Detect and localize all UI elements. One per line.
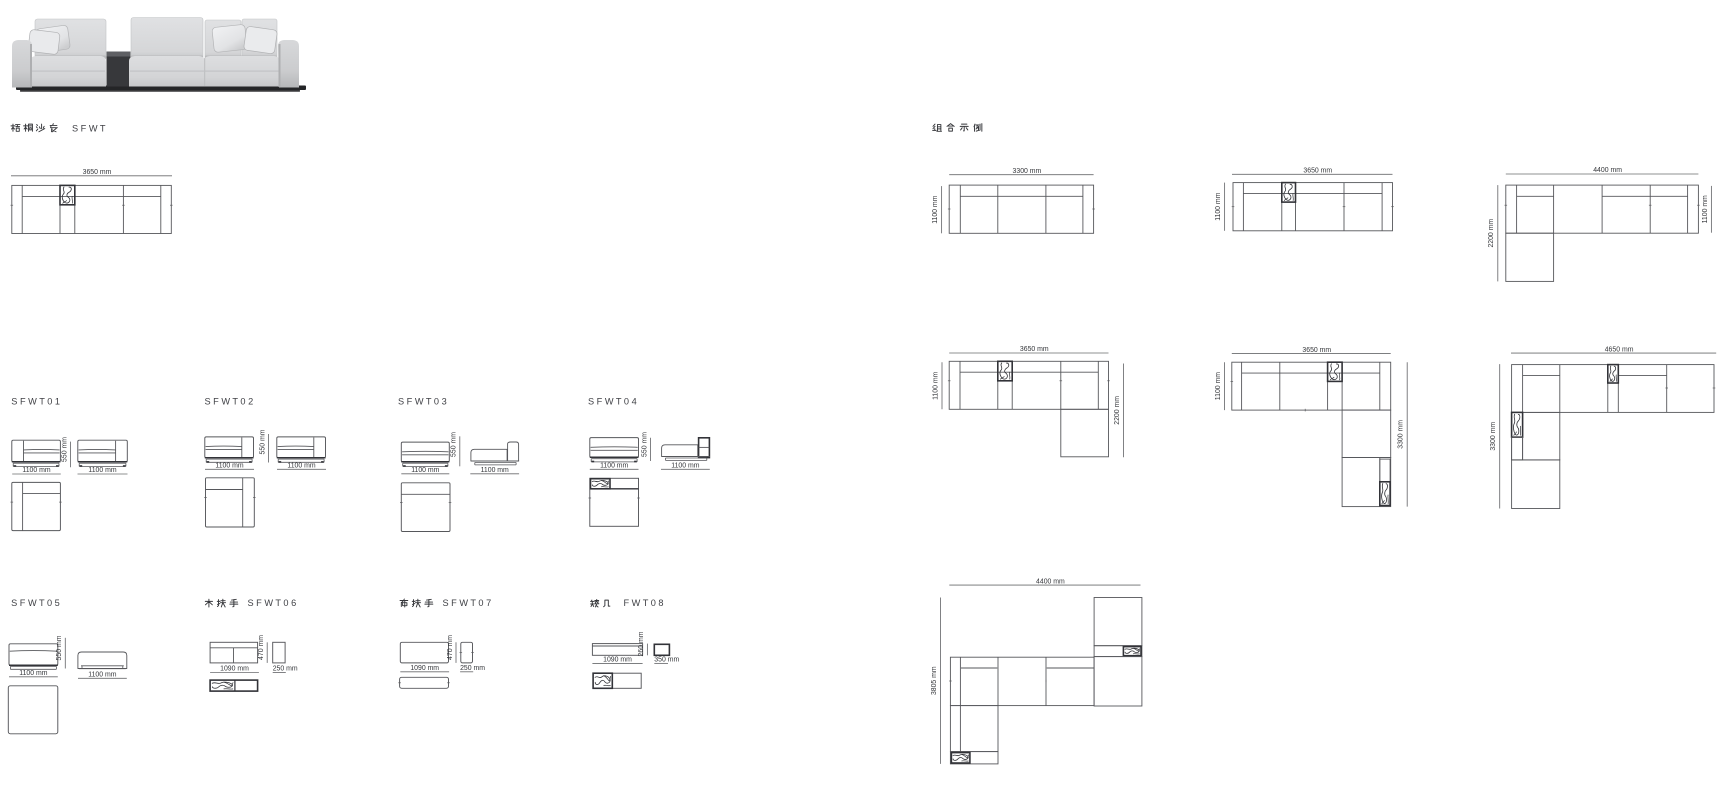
svg-text:1100 mm: 1100 mm xyxy=(215,462,243,469)
svg-text:550 mm: 550 mm xyxy=(259,429,266,454)
svg-text:2200 mm: 2200 mm xyxy=(1488,219,1495,248)
svg-text:1100 mm: 1100 mm xyxy=(88,467,116,474)
svg-text:1100 mm: 1100 mm xyxy=(411,467,439,474)
svg-text:1100 mm: 1100 mm xyxy=(1702,195,1709,223)
svg-text:1100 mm: 1100 mm xyxy=(1215,372,1222,400)
svg-text:3650 mm: 3650 mm xyxy=(83,169,112,176)
svg-text:F W T 0 8: F W T 0 8 xyxy=(624,598,664,608)
svg-text:1100 mm: 1100 mm xyxy=(22,467,50,474)
svg-text:2200 mm: 2200 mm xyxy=(1114,396,1121,425)
svg-text:S F W T 0 4: S F W T 0 4 xyxy=(588,396,637,406)
svg-text:1090 mm: 1090 mm xyxy=(220,666,249,673)
svg-text:4400 mm: 4400 mm xyxy=(1593,167,1622,174)
svg-text:1100 mm: 1100 mm xyxy=(481,467,509,474)
svg-text:3650 mm: 3650 mm xyxy=(1303,168,1332,175)
svg-text:1100 mm: 1100 mm xyxy=(932,195,939,223)
svg-text:470 mm: 470 mm xyxy=(258,635,265,660)
svg-text:260 mm: 260 mm xyxy=(638,631,645,656)
svg-text:4650 mm: 4650 mm xyxy=(1605,346,1634,353)
svg-text:250 mm: 250 mm xyxy=(460,665,485,672)
svg-text:1090 mm: 1090 mm xyxy=(603,657,632,664)
svg-text:3650 mm: 3650 mm xyxy=(1302,347,1331,354)
svg-text:S F W T 0 3: S F W T 0 3 xyxy=(398,396,447,406)
svg-text:470 mm: 470 mm xyxy=(447,635,454,660)
svg-text:550 mm: 550 mm xyxy=(451,432,458,457)
svg-text:S F W T 0 5: S F W T 0 5 xyxy=(11,598,60,608)
svg-text:3805 mm: 3805 mm xyxy=(931,666,938,695)
svg-text:S F W T 0 2: S F W T 0 2 xyxy=(205,396,254,406)
svg-text:1100 mm: 1100 mm xyxy=(600,462,628,469)
svg-text:350 mm: 350 mm xyxy=(654,656,679,663)
svg-text:1100 mm: 1100 mm xyxy=(671,462,699,469)
svg-text:1100 mm: 1100 mm xyxy=(19,670,47,677)
svg-text:250 mm: 250 mm xyxy=(273,666,298,673)
svg-text:1100 mm: 1100 mm xyxy=(1215,192,1222,220)
svg-text:3650 mm: 3650 mm xyxy=(1020,346,1049,353)
svg-text:3300 mm: 3300 mm xyxy=(1398,420,1405,449)
svg-text:S F W T 0 7: S F W T 0 7 xyxy=(443,598,492,608)
svg-text:550 mm: 550 mm xyxy=(61,437,68,462)
svg-text:3300 mm: 3300 mm xyxy=(1013,168,1042,175)
svg-text:3300 mm: 3300 mm xyxy=(1490,422,1497,451)
svg-text:550 mm: 550 mm xyxy=(56,635,63,660)
svg-text:4400 mm: 4400 mm xyxy=(1036,578,1065,585)
svg-text:550 mm: 550 mm xyxy=(641,432,648,457)
svg-text:1090 mm: 1090 mm xyxy=(410,665,439,672)
svg-text:S F W T: S F W T xyxy=(72,124,106,134)
svg-text:S F W T 0 6: S F W T 0 6 xyxy=(248,598,297,608)
svg-text:1100 mm: 1100 mm xyxy=(88,671,116,678)
svg-text:1100 mm: 1100 mm xyxy=(287,462,315,469)
svg-text:1100 mm: 1100 mm xyxy=(932,371,939,399)
svg-text:S F W T 0 1: S F W T 0 1 xyxy=(11,396,60,406)
